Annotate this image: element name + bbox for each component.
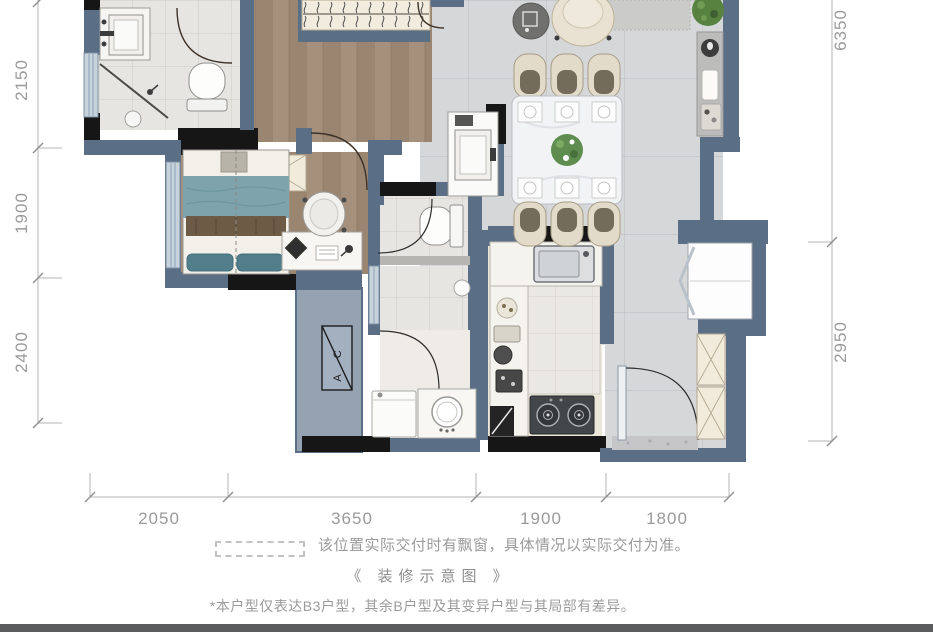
shoe-cabinet: [697, 334, 725, 439]
dim-label-left-2: 2400: [12, 331, 31, 373]
decor-dish: [702, 70, 718, 100]
floorplan-page: AC: [0, 0, 933, 637]
bay-window-legend-text: 该位置实际交付时有飘窗，具体情况以实际交付为准。: [318, 534, 690, 555]
shower-window: [369, 266, 379, 324]
faucet-icon: [490, 148, 496, 161]
dining-chair: [588, 54, 620, 98]
dim-label-left-0: 2150: [12, 59, 31, 101]
plate: [497, 298, 517, 318]
shower-drain: [454, 280, 470, 296]
bathroom1-window: [84, 53, 98, 117]
desk: [282, 232, 362, 270]
refrigerator: [680, 243, 752, 319]
entry-door-leaf: [618, 366, 626, 440]
plan-footnote: *本户型仅表达B3户型，其余B户型及其变异户型与其局部有差异。: [0, 596, 845, 616]
dining-chair: [514, 202, 546, 246]
washing-machine: [372, 391, 416, 437]
small-appliance: [496, 370, 522, 392]
pillow: [237, 254, 283, 271]
vanity-sink: [100, 8, 150, 60]
shower-floor: [380, 266, 470, 330]
floor-drain: [125, 111, 141, 127]
threshold: [380, 256, 470, 265]
centerpiece-flowers: [551, 134, 583, 166]
pillow: [187, 254, 233, 271]
dining-chair: [588, 202, 620, 246]
dim-label-right-1: 2950: [831, 321, 850, 363]
bedroom-window: [166, 162, 180, 268]
dimension-right: 6350 2950: [808, 0, 850, 446]
footer-divider-bar: [0, 624, 933, 632]
dimension-bottom: 2050 3650 1900 1800: [85, 473, 734, 528]
faucet-icon: [100, 31, 114, 36]
jar-tray: [494, 326, 520, 342]
ac-platform: AC: [296, 288, 362, 452]
kitchen-sink: [534, 246, 594, 282]
closet-hangers: [302, 0, 430, 30]
dim-label-right-0: 6350: [831, 9, 850, 51]
dim-label-bottom-0: 2050: [138, 509, 180, 528]
dining-chair: [551, 202, 583, 246]
decor-tray: [701, 104, 721, 130]
toilet: [187, 63, 227, 111]
dim-label-bottom-3: 1800: [646, 509, 688, 528]
dim-label-left-1: 1900: [12, 192, 31, 234]
faucet-icon: [583, 251, 589, 257]
dining-chair: [551, 54, 583, 98]
toiletries: [455, 115, 473, 126]
dining-table: [512, 96, 622, 204]
console-table: [697, 32, 723, 136]
corner-unit: [490, 406, 514, 436]
round-basin-vanity: [418, 389, 476, 438]
bed: [183, 150, 289, 274]
ac-label: AC: [332, 334, 344, 381]
niche-vanity: [448, 112, 498, 196]
dim-label-bottom-1: 3650: [331, 509, 373, 528]
kitchen-center-tiles: [528, 284, 600, 394]
dim-label-bottom-2: 1900: [520, 509, 562, 528]
toilet-2: [420, 205, 463, 247]
stove: [530, 396, 594, 434]
dining-set: [512, 54, 622, 246]
dimension-left: 2150 1900 2400: [12, 0, 62, 428]
bay-window-legend-symbol: [215, 541, 305, 557]
plan-caption: 《 装修示意图 》: [0, 565, 860, 586]
side-table: [513, 3, 549, 39]
dark-plate: [494, 346, 512, 364]
dining-chair: [514, 54, 546, 98]
